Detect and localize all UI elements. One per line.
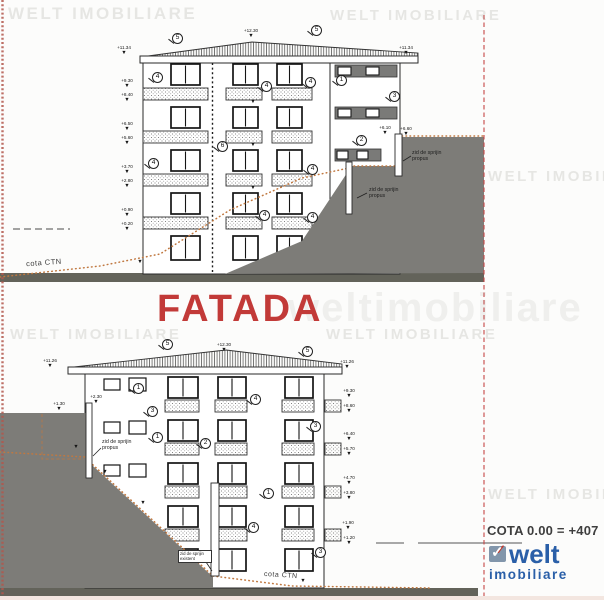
balcony-parapet — [143, 217, 208, 229]
callout-circle: 2 — [200, 438, 211, 449]
sheet-edge-strip — [0, 596, 604, 600]
balcony-parapet — [282, 486, 314, 498]
callout-circle: 1 — [152, 432, 163, 443]
cota-zero-note: COTA 0.00 = +407 — [487, 523, 599, 538]
callout-circle: 1 — [133, 383, 144, 394]
callout-circle: 1 — [263, 488, 274, 499]
side-balcony-parapet — [325, 486, 341, 498]
side-balcony-parapet — [325, 529, 341, 541]
balcony-parapet — [282, 443, 314, 455]
callout-circle: 5 — [311, 25, 322, 36]
bottom-roof-fascia — [68, 367, 342, 374]
callout-circle: 4 — [305, 77, 316, 88]
watermark-text: WELT IMOBILIARE — [488, 486, 604, 503]
balcony-parapet — [165, 443, 199, 455]
balcony-parapet — [215, 486, 247, 498]
side-balcony-parapet — [325, 400, 341, 412]
retaining-wall-existing-label: zid de sprijin existent — [178, 550, 212, 563]
callout-circle: 3 — [147, 406, 158, 417]
small-window — [104, 422, 120, 433]
retaining-wall-proposed-label-1: zid de sprijin propus — [412, 150, 458, 162]
balcony-parapet — [272, 88, 312, 100]
balcony-parapet — [226, 174, 262, 186]
balcony-parapet — [272, 131, 312, 143]
balcony-parapet — [215, 400, 247, 412]
watermark-text: WELT IMOBILIARE — [8, 4, 197, 24]
top-roof-hatch — [148, 42, 418, 56]
watermark-big: weltimobiliare — [288, 286, 583, 331]
bottom-elevation — [0, 350, 522, 596]
callout-circle: 3 — [315, 547, 326, 558]
callout-circle: 4 — [307, 212, 318, 223]
logo-subtitle: imobiliare — [489, 567, 568, 582]
facade-drawing-sheet: { "drawing": { "title": "FATADA", "cota_… — [0, 0, 604, 600]
callout-circle: 4 — [307, 164, 318, 175]
side-balcony-parapet — [325, 443, 341, 455]
callout-circle: 2 — [356, 135, 367, 146]
retaining-wall-proposed-label-3: zid de sprijin propus — [102, 439, 148, 451]
callout-circle: 4 — [259, 210, 270, 221]
agency-logo: ✓✓ welt imobiliare — [489, 541, 568, 582]
drawing-title: FATADA — [157, 288, 323, 331]
callout-circle: 1 — [336, 75, 347, 86]
watermark-text: WELT IMOBILIARE — [330, 7, 501, 24]
small-window — [129, 464, 146, 477]
small-window — [104, 379, 120, 390]
callout-circle: 4 — [261, 81, 272, 92]
watermark-text: WELT IMOBILIARE — [10, 326, 181, 343]
callout-circle: 4 — [248, 522, 259, 533]
callout-circle: 5 — [172, 33, 183, 44]
callout-circle: 3 — [310, 421, 321, 432]
balcony-parapet — [272, 174, 312, 186]
balcony-parapet — [226, 131, 262, 143]
top-roof-fascia — [140, 56, 418, 63]
balcony-parapet — [282, 529, 314, 541]
balcony-parapet — [226, 88, 262, 100]
callout-circle: 4 — [148, 158, 159, 169]
callout-circle: 6 — [217, 141, 228, 152]
small-window — [104, 465, 120, 476]
balcony-parapet — [282, 400, 314, 412]
balcony-parapet — [226, 217, 262, 229]
watermark-text: WELT IMOBILIARE — [488, 168, 604, 185]
callout-circle: 4 — [152, 72, 163, 83]
callout-circle: 3 — [389, 91, 400, 102]
balcony-parapet — [215, 443, 247, 455]
retaining-wall-proposed-label-2: zid de sprijin propus — [369, 187, 415, 199]
retaining-wall-proposed-2 — [395, 134, 402, 176]
callout-circle: 4 — [250, 394, 261, 405]
balcony-parapet — [143, 131, 208, 143]
balcony-parapet — [143, 88, 208, 100]
retaining-wall-proposed-3 — [86, 403, 92, 478]
callout-circle: 5 — [302, 346, 313, 357]
balcony-parapet — [143, 174, 208, 186]
callout-circle: 5 — [162, 339, 173, 350]
balcony-parapet — [165, 486, 199, 498]
small-window — [129, 421, 146, 434]
check-icon: ✓✓ — [489, 546, 506, 562]
retaining-wall-proposed-1 — [346, 162, 352, 214]
balcony-parapet — [165, 400, 199, 412]
ground-line-bottom — [0, 588, 478, 596]
balcony-parapet — [215, 529, 247, 541]
logo-name: welt — [509, 541, 560, 567]
retaining-wall-existing — [211, 483, 219, 576]
